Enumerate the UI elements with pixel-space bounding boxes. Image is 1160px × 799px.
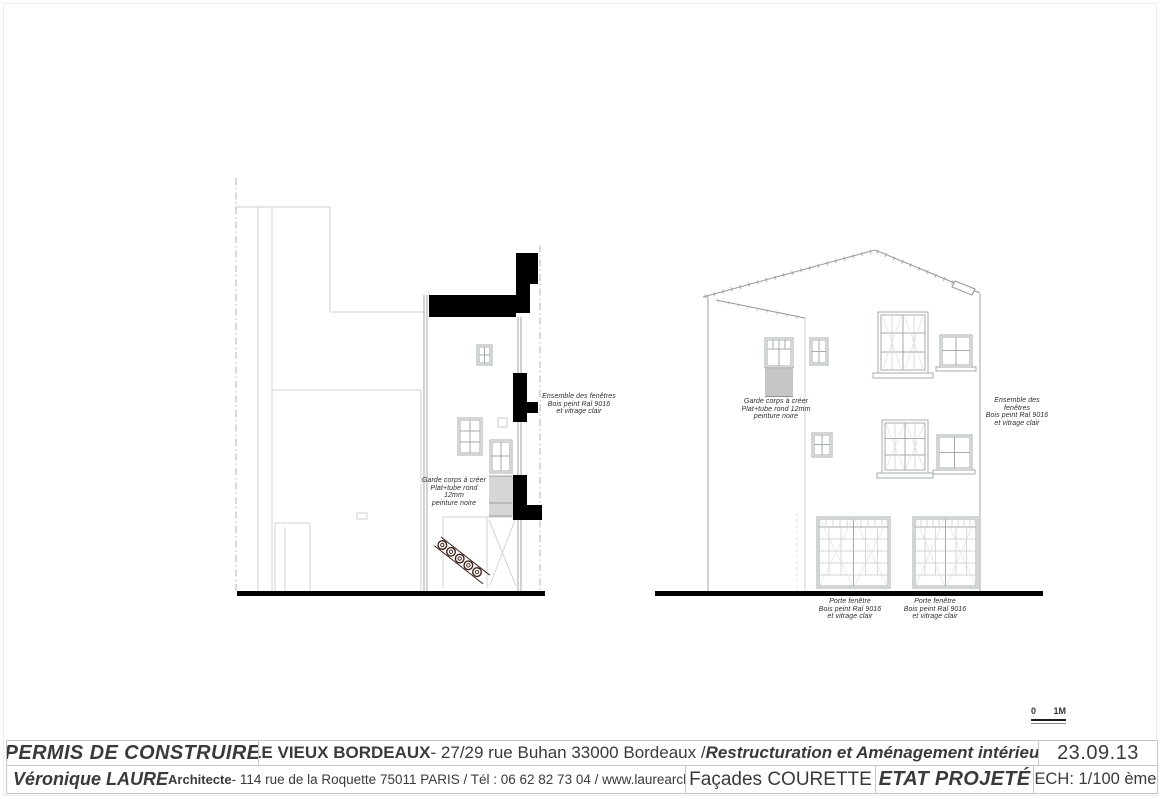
left-axis-lines <box>236 178 540 591</box>
annotation-left-garde-corps: Garde corps à créer Plat+tube rond 12mm … <box>421 477 487 507</box>
left-window-upper <box>477 345 492 365</box>
annotation-porte-fenetre-left: Porte fenêtre Bois peint Ral 9016 et vit… <box>816 598 884 621</box>
left-window-lower <box>490 440 512 473</box>
annotation-line: Plat+tube rond 12mm <box>741 406 811 414</box>
annotation-right-garde-corps: Garde corps à créer Plat+tube rond 12mm … <box>741 398 811 421</box>
annotation-line: Garde corps à créer <box>741 398 811 406</box>
annotation-line: et vitrage clair <box>816 613 884 621</box>
left-ground-line <box>237 591 545 596</box>
drawing-scale: ECH: 1/100 ème <box>1035 770 1157 789</box>
annotation-line: Garde corps à créer <box>421 477 487 485</box>
annotation-line: Bois peint Ral 9016 <box>981 412 1053 420</box>
annotation-line: Plat+tube rond 12mm <box>421 485 487 500</box>
left-guardrail-bars <box>489 476 512 516</box>
left-facade-drawing <box>236 178 545 596</box>
roof-chimney <box>952 281 975 295</box>
scale-bar-end: 1M <box>1053 706 1066 716</box>
status-cell: ETAT PROJETÉ <box>875 765 1034 794</box>
annotation-line: peinture noire <box>421 500 487 508</box>
annotation-line: Bois peint Ral 9016 <box>901 606 969 614</box>
architect-cell: Véronique LAURE Architecte - 114 rue de … <box>6 765 686 794</box>
left-background-outline <box>236 207 518 591</box>
scale-bar <box>1031 719 1066 721</box>
scale-bar-labels: 0 1M <box>1031 706 1066 716</box>
annotation-line: Porte fenêtre <box>901 598 969 606</box>
drawing-date: 23.09.13 <box>1057 742 1139 765</box>
french-door-left <box>817 517 890 588</box>
annotation-line: Ensemble des fenêtres <box>541 393 617 401</box>
drawing-status: ETAT PROJETÉ <box>879 768 1031 791</box>
scale-cell: ECH: 1/100 ème <box>1033 765 1158 794</box>
scale-bar-start: 0 <box>1031 706 1036 716</box>
annotation-line: Porte fenêtre <box>816 598 884 606</box>
architect-title: Architecte <box>168 772 232 787</box>
right-guardrail-bars <box>765 368 793 397</box>
project-name: LE VIEUX BORDEAUX <box>258 743 431 763</box>
right-window-mid-right <box>933 435 975 474</box>
annotation-line: Bois peint Ral 9016 <box>816 606 884 614</box>
drawing-title-cell: Façades COURETTE <box>685 765 876 794</box>
french-door-right <box>913 517 978 588</box>
project-address: - 27/29 rue Buhan 33000 Bordeaux / <box>431 743 706 763</box>
right-ground-line <box>655 591 1043 596</box>
drawing-title: Façades COURETTE <box>689 769 872 791</box>
annotation-left-ensemble-fenetres: Ensemble des fenêtres Bois peint Ral 901… <box>541 393 617 416</box>
right-large-window-upper <box>873 312 933 378</box>
architect-details: - 114 rue de la Roquette 75011 PARIS / T… <box>232 772 686 787</box>
right-small-window-upper <box>810 338 828 365</box>
right-wing-divider <box>797 318 805 591</box>
annotation-line: et vitrage clair <box>981 420 1053 428</box>
project-title-cell: LE VIEUX BORDEAUX - 27/29 rue Buhan 3300… <box>258 740 1039 766</box>
annotation-porte-fenetre-right: Porte fenêtre Bois peint Ral 9016 et vit… <box>901 598 969 621</box>
permit-type-cell: PERMIS DE CONSTRUIRE <box>6 740 259 766</box>
drawing-sheet: Ensemble des fenêtres Bois peint Ral 901… <box>0 0 1160 799</box>
right-window-upper-right <box>936 335 976 371</box>
architect-name: Véronique LAURE <box>13 769 168 790</box>
annotation-line: Bois peint Ral 9016 <box>541 401 617 409</box>
roof-outline <box>703 250 980 318</box>
right-door-window-upper <box>765 338 793 368</box>
right-large-window-mid <box>877 420 933 478</box>
right-small-window-mid <box>812 433 832 457</box>
project-subtitle: Restructuration et Aménagement intérieur <box>706 743 1039 763</box>
scale-bar-underline <box>1031 723 1066 724</box>
annotation-line: Ensemble des fenêtres <box>981 397 1053 412</box>
annotation-line: et vitrage clair <box>901 613 969 621</box>
annotation-right-ensemble-fenetres: Ensemble des fenêtres Bois peint Ral 901… <box>981 397 1053 427</box>
permit-type-label: PERMIS DE CONSTRUIRE <box>6 742 259 765</box>
annotation-line: et vitrage clair <box>541 408 617 416</box>
date-cell: 23.09.13 <box>1038 740 1158 766</box>
annotation-line: peinture noire <box>741 413 811 421</box>
